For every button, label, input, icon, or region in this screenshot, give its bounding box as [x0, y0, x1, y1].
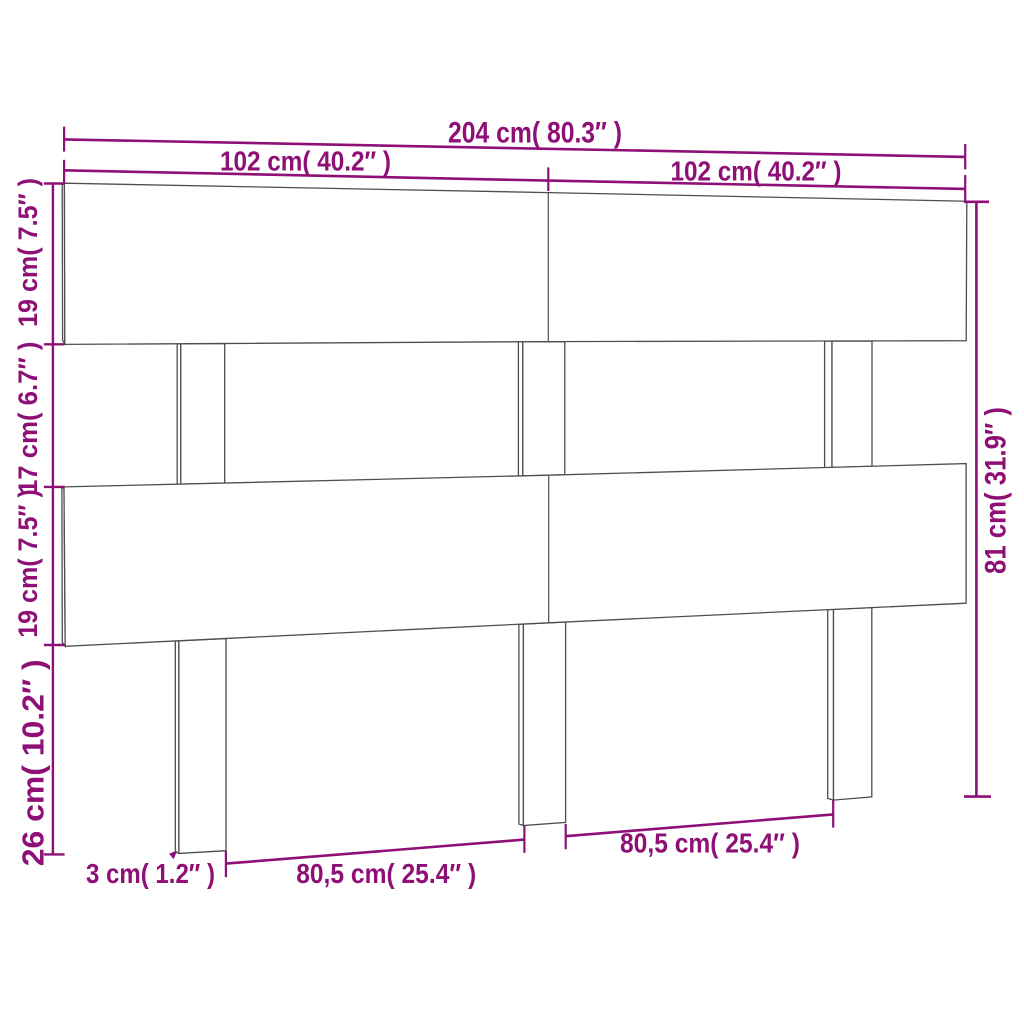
svg-text:19 cm( 7.5″ ): 19 cm( 7.5″ ) — [13, 489, 43, 638]
svg-text:102 cm( 40.2″ ): 102 cm( 40.2″ ) — [220, 146, 391, 177]
svg-text:26 cm( 10.2″ ): 26 cm( 10.2″ ) — [16, 659, 51, 866]
svg-text:19 cm( 7.5″ ): 19 cm( 7.5″ ) — [13, 178, 43, 327]
svg-text:3 cm( 1.2″ ): 3 cm( 1.2″ ) — [86, 858, 215, 889]
svg-text:80,5 cm( 25.4″ ): 80,5 cm( 25.4″ ) — [620, 828, 800, 859]
svg-text:102 cm( 40.2″ ): 102 cm( 40.2″ ) — [671, 155, 842, 186]
svg-text:17 cm( 6.7″ ): 17 cm( 6.7″ ) — [13, 342, 43, 495]
svg-text:81 cm( 31.9″ ): 81 cm( 31.9″ ) — [980, 407, 1013, 574]
svg-text:204 cm( 80.3″ ): 204 cm( 80.3″ ) — [448, 117, 622, 150]
svg-text:80,5 cm( 25.4″ ): 80,5 cm( 25.4″ ) — [296, 858, 476, 889]
